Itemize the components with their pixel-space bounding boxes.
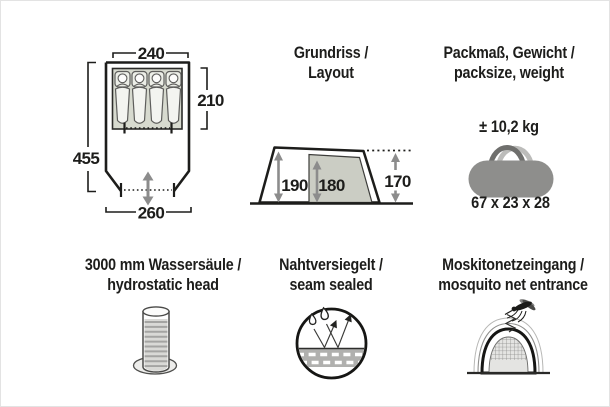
pack-title-de: Packmaß, Gewicht /	[433, 43, 584, 63]
mosquito-title-de: Moskitonetzeingang /	[433, 255, 593, 275]
seam-title-en: seam sealed	[264, 275, 398, 295]
packsize-value: 67 x 23 x 28	[434, 194, 586, 213]
mosquito-title: Moskitonetzeingang / mosquito net entran…	[433, 255, 593, 295]
height-170-label: 170	[384, 172, 411, 191]
entrance-arrow-icon	[143, 172, 154, 206]
pack-title-en: packsize, weight	[433, 63, 584, 83]
dim-240-label: 240	[138, 44, 165, 63]
seam-circle	[297, 309, 366, 378]
height-180-label: 180	[318, 176, 345, 195]
seam-title-de: Nahtversiegelt /	[264, 255, 398, 275]
dim-455	[88, 63, 96, 192]
tent-sideview-diagram: 190 180 170	[246, 139, 416, 209]
sleeping-bag-icon	[115, 72, 130, 124]
dim-260-label: 260	[138, 204, 165, 223]
sleeping-bag-icon	[149, 72, 164, 124]
bag-body	[469, 161, 554, 198]
layout-title: Grundriss / Layout	[260, 43, 403, 83]
column-top-opening	[143, 307, 169, 316]
pack-title: Packmaß, Gewicht / packsize, weight	[433, 43, 584, 83]
hydrostatic-title: 3000 mm Wassersäule / hydrostatic head	[75, 255, 251, 295]
dim-455-label: 455	[73, 149, 100, 168]
tent-spec-sheet: 240 210 455 260 Grundriss / Layout	[0, 0, 610, 407]
water-column-icon	[121, 299, 196, 384]
tent-floorplan-diagram: 240 210 455 260	[59, 25, 239, 225]
seam-title: Nahtversiegelt / seam sealed	[264, 255, 398, 295]
hydrostatic-title-en: hydrostatic head	[75, 275, 251, 295]
seam-sealed-icon	[291, 303, 373, 385]
duffel-bag-icon	[463, 137, 559, 201]
weight-value: ± 10,2 kg	[434, 118, 584, 137]
layout-title-de: Grundriss /	[260, 43, 403, 63]
sleeping-bag-icon	[132, 72, 147, 124]
dim-210-label: 210	[197, 91, 224, 110]
mosquito-net-entrance-icon	[456, 291, 566, 386]
layout-title-en: Layout	[260, 63, 403, 83]
sleeping-bag-icon	[166, 72, 181, 124]
hydrostatic-title-de: 3000 mm Wassersäule /	[75, 255, 251, 275]
height-190-label: 190	[281, 176, 308, 195]
